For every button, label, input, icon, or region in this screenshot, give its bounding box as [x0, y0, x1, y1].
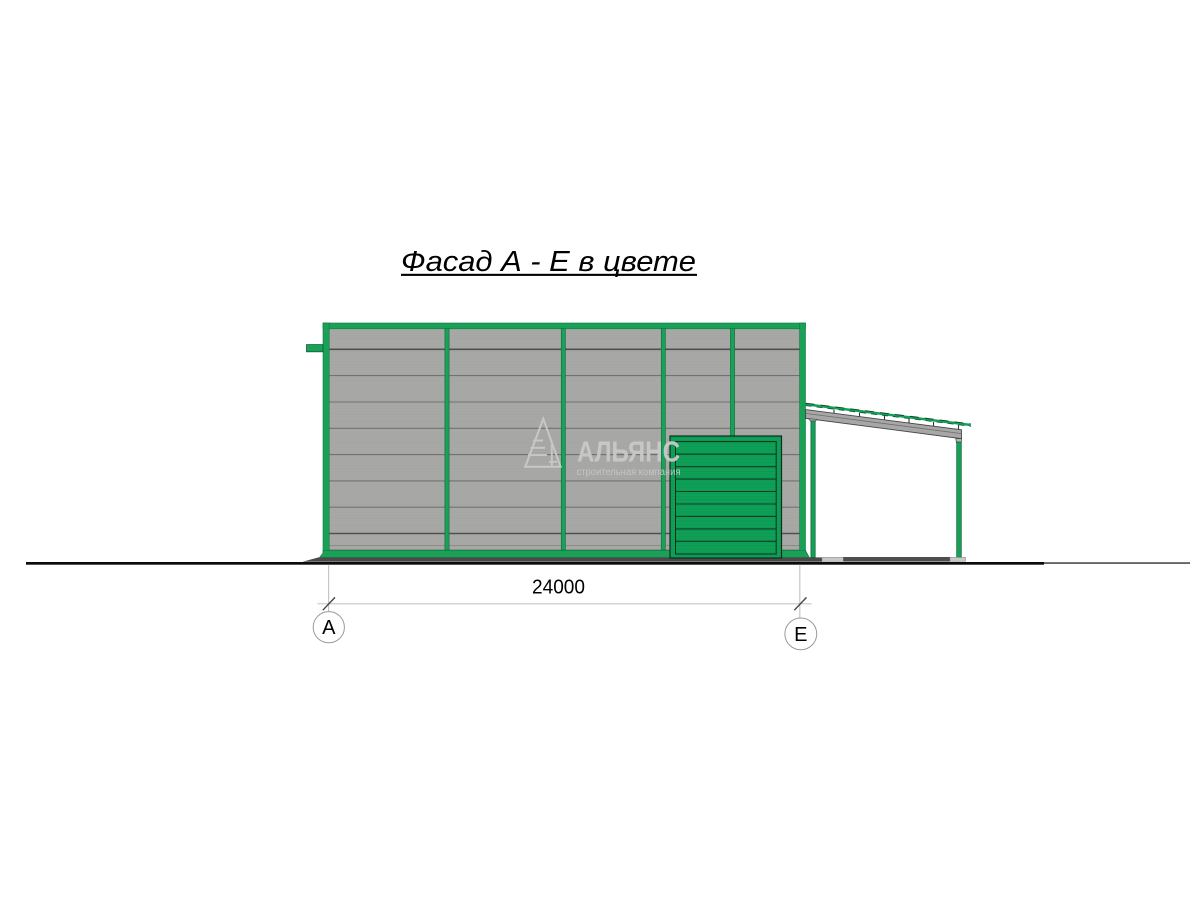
- svg-text:АЛЬЯНС: АЛЬЯНС: [577, 437, 680, 469]
- svg-text:А: А: [322, 617, 336, 639]
- svg-text:24000: 24000: [532, 577, 585, 599]
- svg-text:Е: Е: [794, 624, 807, 646]
- svg-text:Фасад А - Е в цвете: Фасад А - Е в цвете: [401, 246, 696, 278]
- svg-text:строительная компания: строительная компания: [577, 467, 681, 478]
